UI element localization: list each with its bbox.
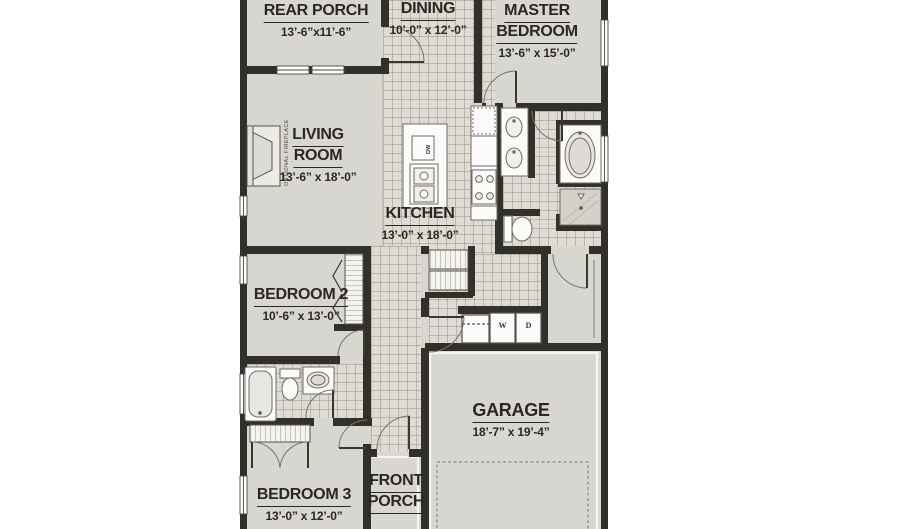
optional-fireplace-note: OPTIONAL FIREPLACE	[284, 119, 290, 186]
garage-inner-edge	[430, 353, 597, 529]
door-arc-front-door	[377, 416, 409, 449]
door-arc-bed3-closet-left	[252, 442, 280, 468]
room-name: BEDROOM 2	[254, 286, 348, 307]
window	[601, 136, 608, 182]
pantry-shelf	[429, 250, 468, 269]
window	[277, 66, 309, 74]
door-arc-master-bedroom	[484, 71, 516, 103]
garage-slab-dashed	[437, 462, 588, 529]
room-label-front-porch: FRONT PORCH	[368, 472, 424, 514]
room-dims: 13’-6” x 15’-0”	[496, 46, 577, 60]
master-tub	[560, 125, 601, 183]
floor-plan: REAR PORCH 13’-6”x11’-6” DINING 10’-0” x…	[0, 0, 900, 529]
room-dims: 13’-6” x 18’-0”	[279, 170, 356, 184]
room-dims: 13’-0” x 18’-0”	[381, 228, 458, 242]
room-name: ROOM	[294, 147, 343, 168]
room-name: BEDROOM	[496, 23, 577, 44]
dryer-label: D	[516, 321, 541, 330]
room-label-bedroom2: BEDROOM 2 10’-6” x 13’-0”	[254, 286, 348, 323]
washer-label: W	[490, 321, 515, 330]
kitchen-island	[403, 124, 447, 208]
room-name: GARAGE	[472, 400, 549, 423]
room-dims: 13’-6”x11’-6”	[264, 25, 369, 39]
room-label-kitchen: KITCHEN 13’-0” x 18’-0”	[381, 205, 458, 242]
door-arc-bedroom2	[338, 330, 364, 356]
room-name: FRONT	[369, 472, 423, 493]
plan-linework	[0, 0, 900, 529]
room-label-rear-porch: REAR PORCH 13’-6”x11’-6”	[264, 2, 369, 39]
master-shower	[560, 189, 601, 225]
window	[312, 66, 344, 74]
window	[240, 196, 247, 216]
walls	[240, 0, 608, 529]
room-name: KITCHEN	[385, 205, 454, 226]
pantry-shelf	[429, 271, 468, 290]
dishwasher-label: DW	[426, 145, 432, 154]
room-label-bedroom3: BEDROOM 3 13’-0” x 12’-0”	[257, 486, 351, 523]
room-name: BEDROOM 3	[257, 486, 351, 507]
window	[601, 20, 608, 66]
room-name: REAR PORCH	[264, 2, 369, 23]
bench	[462, 315, 489, 343]
master-toilet	[504, 216, 532, 242]
kitchen-counter	[471, 106, 497, 220]
room-dims: 10’-6” x 13’-0”	[254, 309, 348, 323]
room-dims: 18’-7” x 19’-4”	[472, 425, 549, 439]
master-vanity	[501, 108, 528, 176]
room-label-dining: DINING 10’-0” x 12’-0”	[389, 0, 466, 37]
bath2-fixtures	[245, 367, 334, 421]
room-name: LIVING	[292, 126, 344, 147]
door-arc-walkin-closet	[553, 254, 587, 288]
toilet-tank	[280, 369, 300, 378]
room-name: DINING	[401, 0, 455, 21]
window	[240, 476, 247, 514]
window	[240, 256, 247, 284]
room-dims: 13’-0” x 12’-0”	[257, 509, 351, 523]
room-name: PORCH	[368, 493, 424, 514]
room-label-master-bedroom: MASTER BEDROOM 13’-6” x 15’-0”	[496, 2, 577, 60]
room-dims: 10’-0” x 12’-0”	[389, 23, 466, 37]
door-arc-bed3-closet-right	[280, 442, 308, 468]
toilet-bowl	[282, 378, 298, 400]
fireplace	[247, 126, 280, 186]
room-name: MASTER	[504, 2, 570, 23]
bedroom3-closet-shelf	[250, 425, 310, 442]
room-label-living-room: LIVING ROOM 13’-6” x 18’-0”	[279, 126, 356, 184]
room-label-garage: GARAGE 18’-7” x 19’-4”	[472, 400, 549, 439]
